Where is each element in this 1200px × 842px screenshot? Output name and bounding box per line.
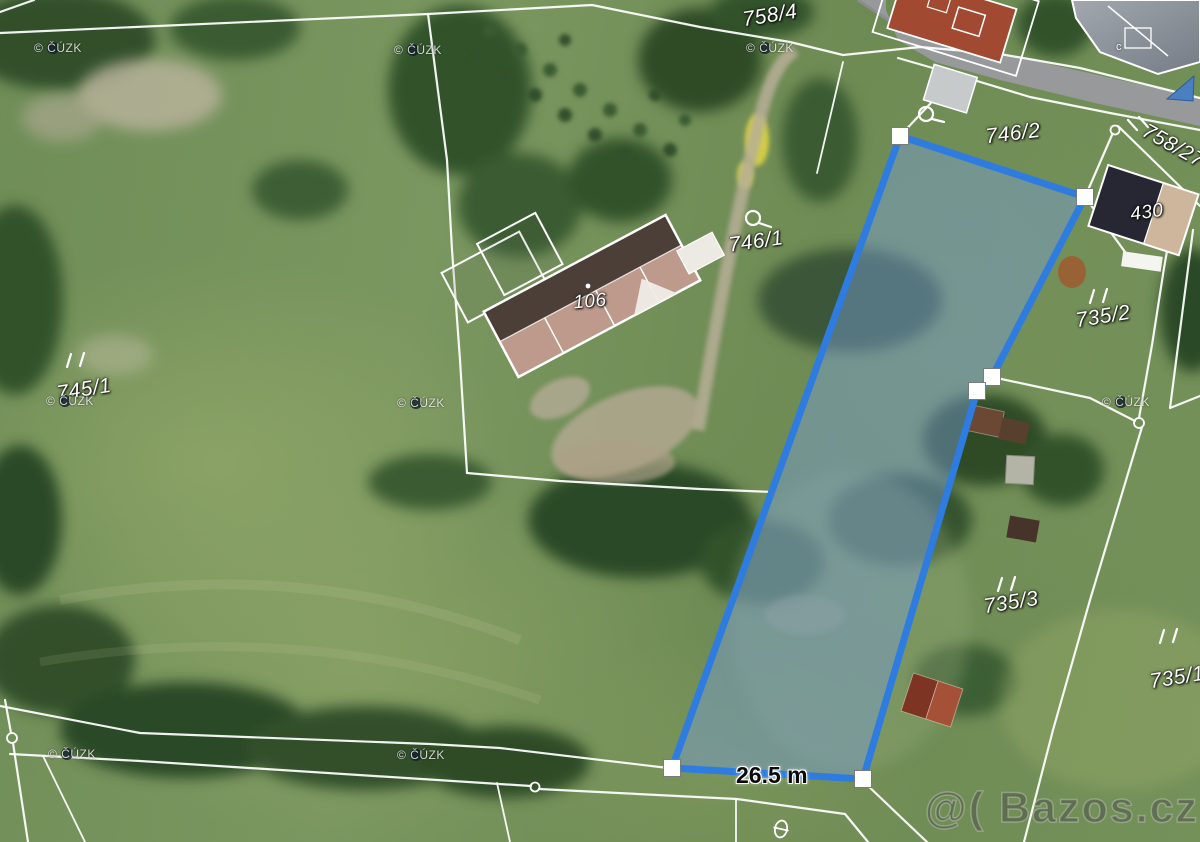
grassland-symbol-735-3 (998, 577, 1015, 591)
cuzk-watermark: © ČÚZK (394, 43, 442, 57)
house-430-annex (1121, 251, 1163, 271)
cuzk-watermark: © ČÚZK (34, 41, 82, 55)
bazos-watermark: @( Bazos.cz (925, 784, 1199, 833)
shed-near-road (923, 64, 977, 113)
cuzk-watermark: © ČÚZK (1102, 395, 1150, 409)
grassland-symbol-735-2 (1090, 289, 1107, 303)
cuzk-watermark: © ČÚZK (397, 748, 445, 762)
house-430 (1088, 165, 1198, 255)
house-106-point (586, 284, 591, 289)
blue-arrow-marker (1167, 76, 1194, 101)
gray-building (1072, 0, 1200, 74)
cuzk-watermark: © ČÚZK (397, 396, 445, 410)
courtyard-symbol-746-1 (746, 211, 760, 225)
cuzk-watermark: © ČÚZK (746, 41, 794, 55)
cuzk-watermark: © ČÚZK (48, 747, 96, 761)
frontage-measurement: 26.5 m (736, 762, 808, 789)
map-graphics (0, 0, 1200, 842)
aerial-cadastral-map: 758/4 746/2 746/1 745/1 735/2 735/3 735/… (0, 0, 1200, 842)
cuzk-watermark: © ČÚZK (46, 394, 94, 408)
theta-symbol (772, 819, 789, 839)
